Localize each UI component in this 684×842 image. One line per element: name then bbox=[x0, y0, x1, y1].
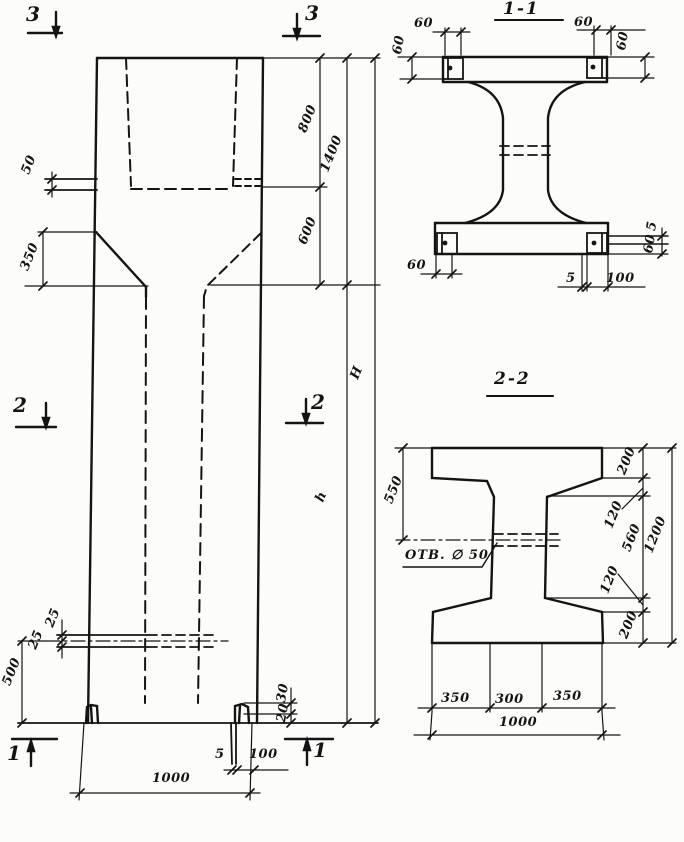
elevation-outline bbox=[45, 58, 263, 764]
dim-100-plate: 100 bbox=[249, 748, 278, 762]
elevation-hidden-lines bbox=[46, 58, 263, 703]
s1-dim-5-bottom: 5 bbox=[566, 272, 576, 286]
s2-hole-note: ОТВ. ∅ 50 bbox=[405, 549, 489, 563]
section-2-2-hidden bbox=[396, 534, 560, 546]
marker-2-right: 2 bbox=[311, 392, 325, 412]
dim-5-plate: 5 bbox=[215, 748, 225, 762]
s2-dim-1000: 1000 bbox=[499, 716, 537, 730]
s1-dim-60-top-left: 60 bbox=[414, 17, 433, 31]
drawing-linework bbox=[0, 0, 684, 842]
s1-dim-60-bottom-left: 60 bbox=[407, 259, 426, 273]
marker-1-right: 1 bbox=[313, 740, 327, 760]
marker-1-left: 1 bbox=[7, 743, 21, 763]
section-2-2-title: 2-2 bbox=[494, 370, 531, 388]
marker-3-right: 3 bbox=[305, 3, 319, 23]
marker-3-left: 3 bbox=[26, 4, 40, 24]
drawing-sheet: 3 3 2 2 1 1 800 1400 600 h H 50 350 25 2… bbox=[0, 0, 684, 842]
marker-2-left: 2 bbox=[13, 395, 27, 415]
s2-dim-350-left: 350 bbox=[441, 692, 470, 706]
section-cut-markers bbox=[12, 12, 333, 766]
section-1-1-anchor-plates bbox=[437, 58, 607, 254]
dim-1000-width: 1000 bbox=[152, 772, 190, 786]
section-1-1-title: 1-1 bbox=[503, 0, 540, 18]
section-1-1-hidden bbox=[500, 146, 550, 155]
s1-dim-100-bottom: 100 bbox=[606, 272, 635, 286]
s1-dim-60-top-right: 60 bbox=[574, 16, 593, 30]
s2-dim-350-right: 350 bbox=[553, 690, 582, 704]
s2-dim-300: 300 bbox=[495, 693, 524, 707]
